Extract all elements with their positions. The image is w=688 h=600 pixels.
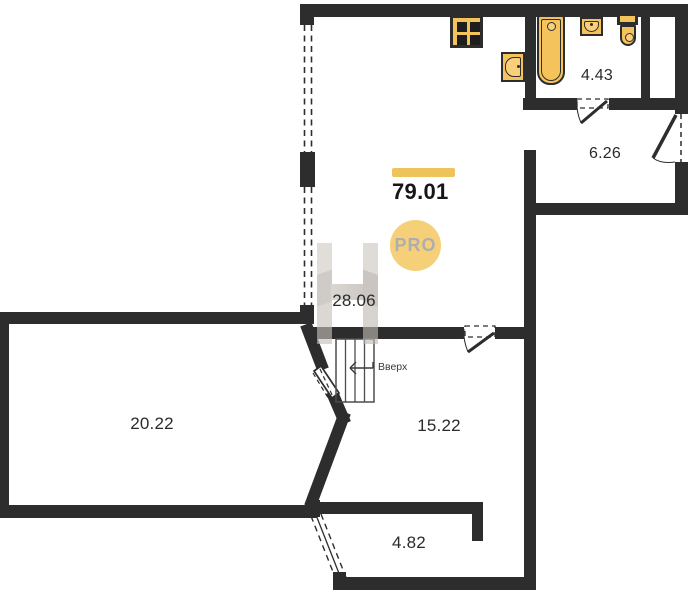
window [305,25,312,306]
bathroom-door [577,99,608,123]
bathtub-icon [537,15,565,85]
window [311,514,347,582]
toilet-tank-icon [617,13,638,25]
stairs-direction-label: Вверх [378,361,407,373]
room-area-label-living: 20.22 [130,414,174,434]
room-area-label-hall: 15.22 [417,416,461,436]
room-area-label-studio: 28.06 [332,291,376,311]
floor-plan: 79.01 PRO 28.06 20.22 15.22 4.82 6.26 4.… [0,0,688,600]
hall-door [464,326,495,352]
stove-icon [450,15,483,48]
sink-icon [580,17,603,36]
kitchen-sink-icon [501,52,525,82]
pro-badge: PRO [390,220,441,271]
entrance-door [653,114,681,163]
total-area-label: 79.01 [392,179,458,205]
stairs [336,339,374,402]
room-area-label-loggia: 4.82 [392,533,426,553]
living-room-door [313,366,339,401]
wall-segment-angled [308,330,343,501]
room-area-label-bathroom: 4.43 [581,67,613,85]
stairs-direction-arrow [350,362,373,374]
room-area-label-entry: 6.26 [589,145,621,163]
toilet-icon [620,25,636,46]
total-area-underline [392,168,455,177]
